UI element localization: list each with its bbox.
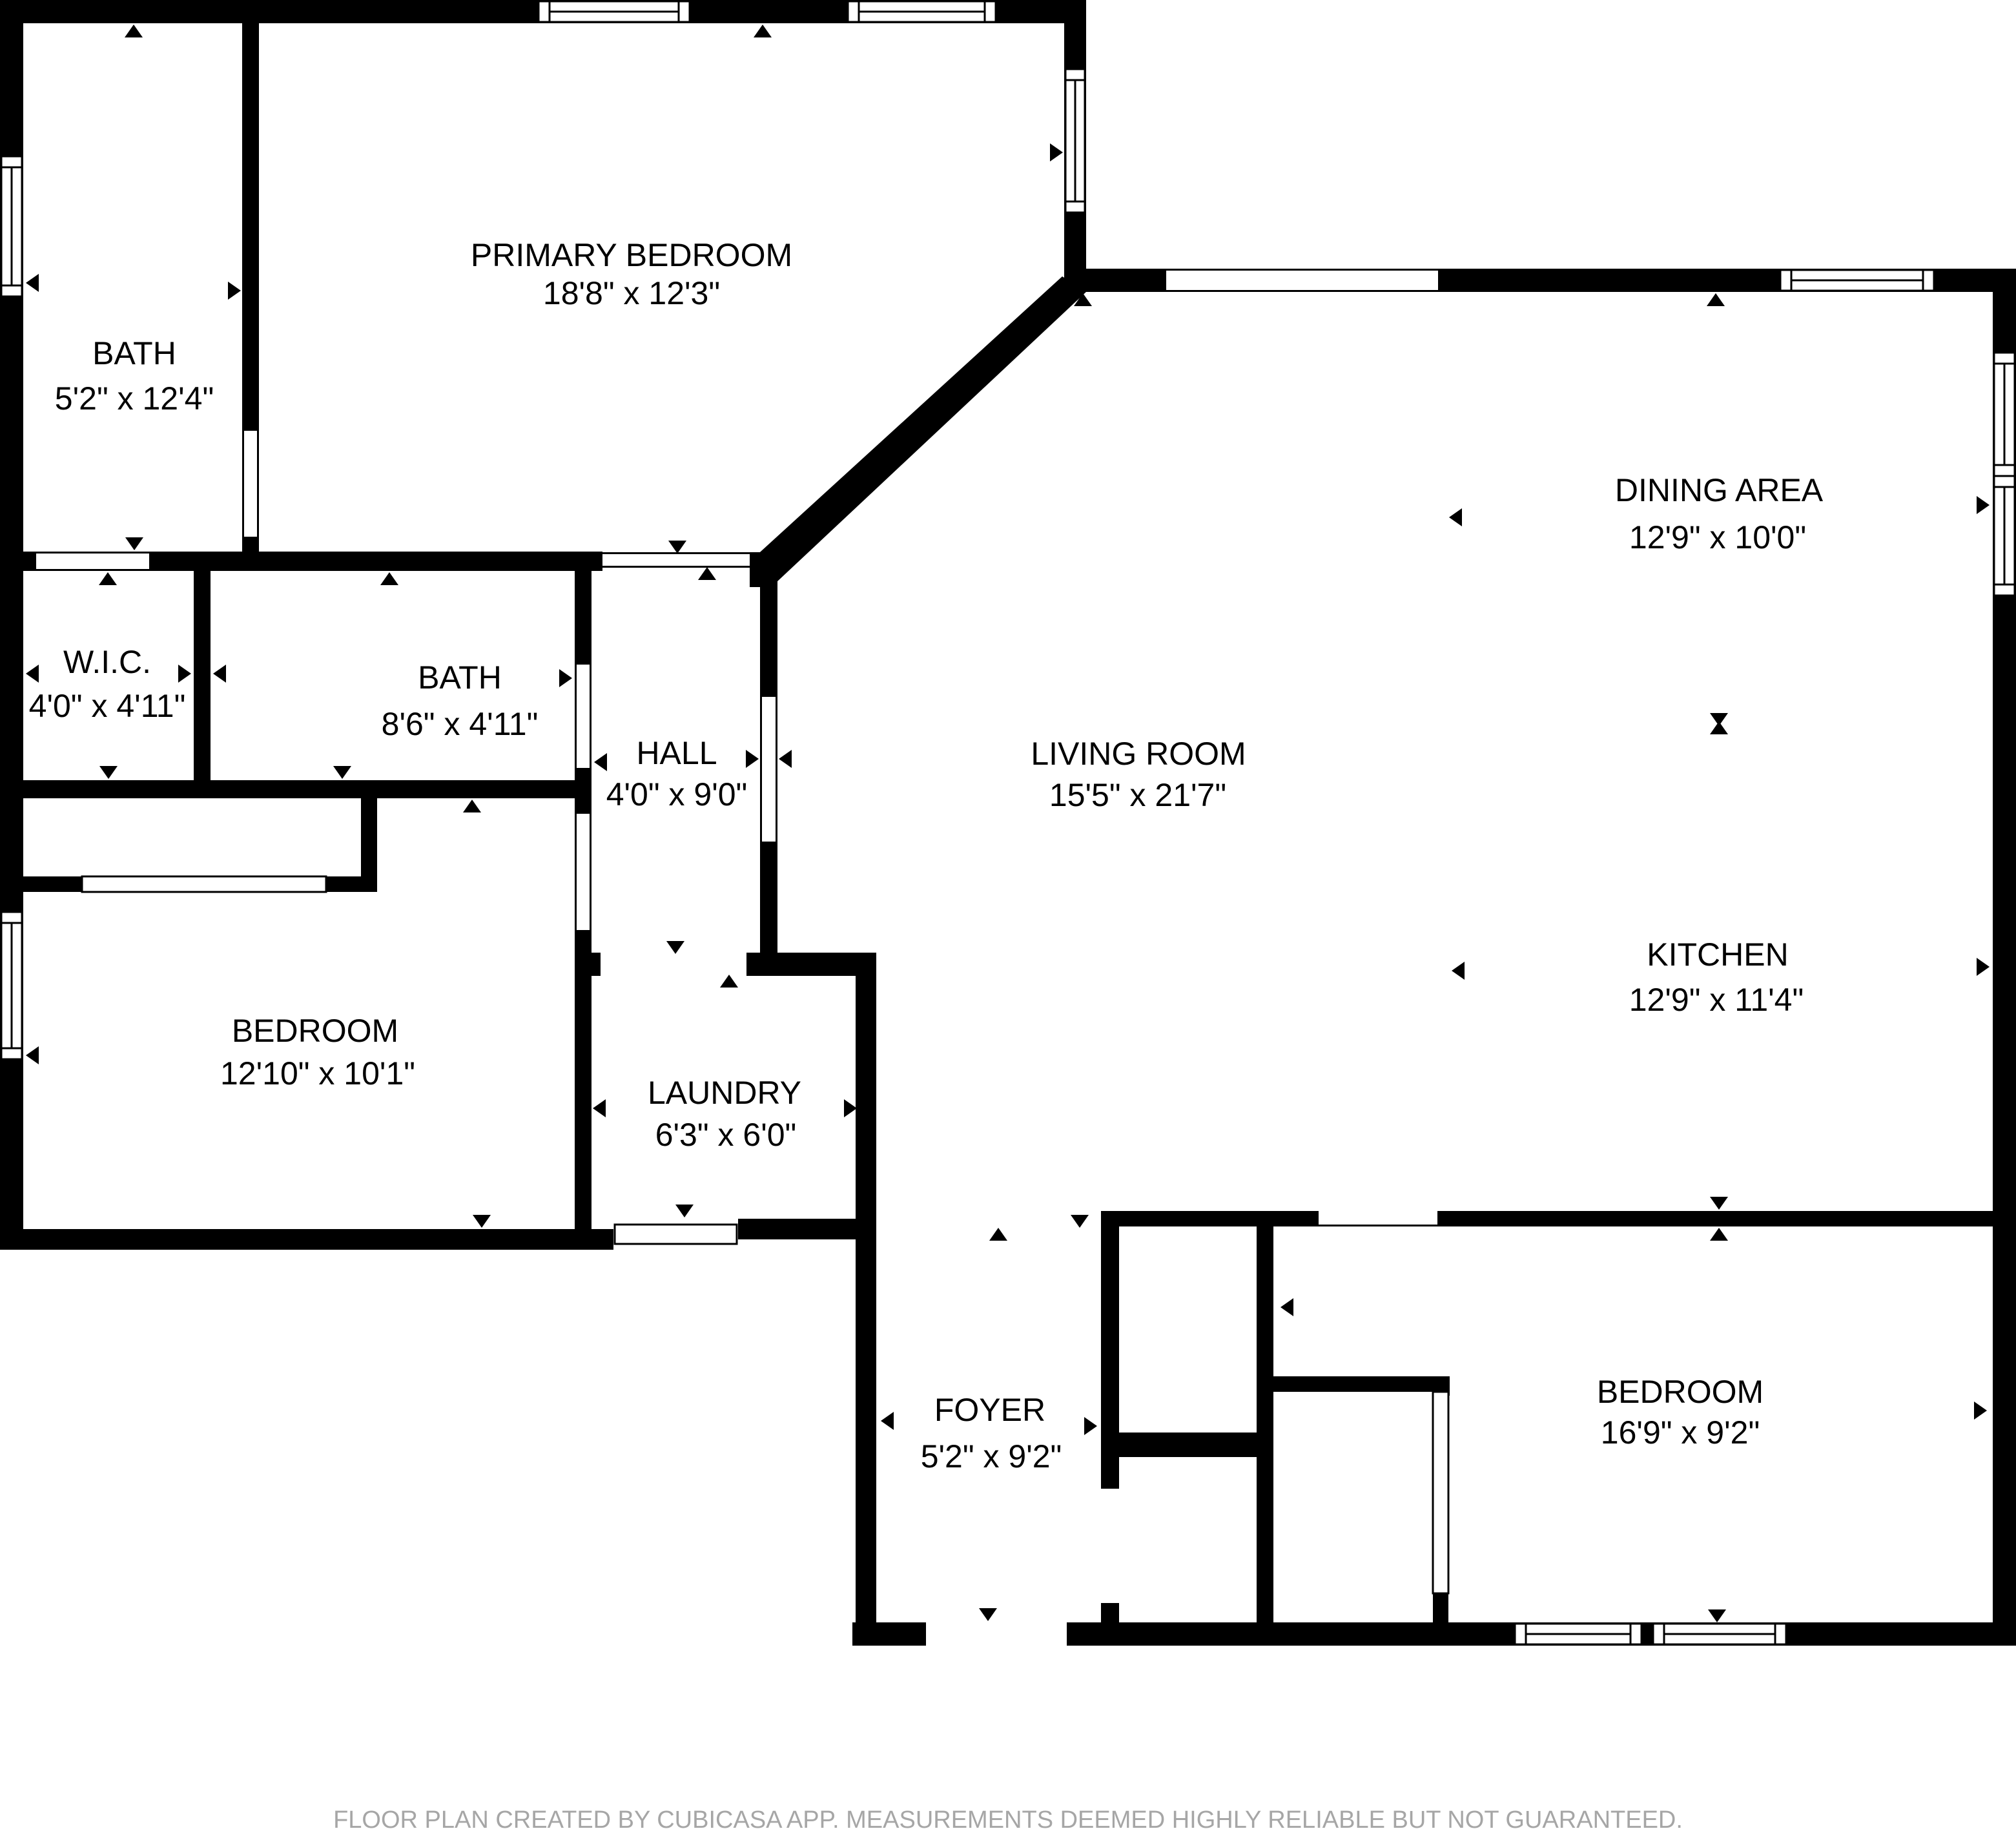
svg-text:KITCHEN: KITCHEN [1647,936,1788,973]
svg-text:BATH: BATH [92,335,176,371]
svg-text:8'6" x 4'11": 8'6" x 4'11" [382,706,539,742]
svg-text:4'0" x 9'0": 4'0" x 9'0" [606,776,748,812]
svg-text:18'8" x 12'3": 18'8" x 12'3" [543,275,720,311]
svg-text:PRIMARY BEDROOM: PRIMARY BEDROOM [471,237,792,273]
svg-text:DINING AREA: DINING AREA [1615,472,1824,508]
svg-text:5'2" x 9'2": 5'2" x 9'2" [921,1438,1062,1474]
svg-text:FLOOR PLAN CREATED BY CUBICASA: FLOOR PLAN CREATED BY CUBICASA APP. MEAS… [333,1806,1683,1831]
svg-text:12'10" x 10'1": 12'10" x 10'1" [220,1055,415,1091]
svg-text:BEDROOM: BEDROOM [1597,1374,1764,1410]
svg-text:12'9" x 10'0": 12'9" x 10'0" [1629,519,1806,555]
svg-text:4'0" x 4'11": 4'0" x 4'11" [29,688,186,724]
svg-text:LIVING ROOM: LIVING ROOM [1031,736,1246,772]
svg-text:5'2" x 12'4": 5'2" x 12'4" [55,380,214,417]
svg-text:W.I.C.: W.I.C. [63,644,151,680]
svg-text:BEDROOM: BEDROOM [232,1013,398,1049]
svg-text:16'9" x 9'2": 16'9" x 9'2" [1601,1414,1760,1451]
svg-text:LAUNDRY: LAUNDRY [648,1075,801,1111]
svg-text:15'5" x 21'7": 15'5" x 21'7" [1049,777,1226,813]
svg-text:12'9" x 11'4": 12'9" x 11'4" [1629,982,1804,1018]
svg-text:6'3" x 6'0": 6'3" x 6'0" [655,1117,797,1153]
svg-text:HALL: HALL [636,735,717,771]
svg-text:FOYER: FOYER [934,1392,1045,1428]
svg-text:BATH: BATH [418,659,502,696]
